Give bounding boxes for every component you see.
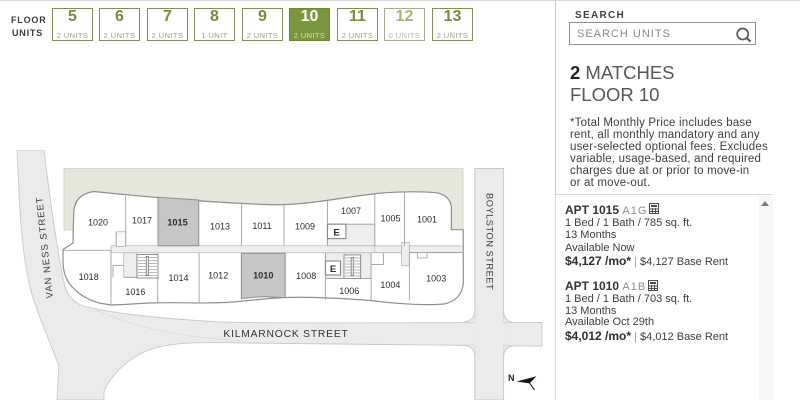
- svg-text:1017: 1017: [132, 215, 152, 225]
- svg-text:1010: 1010: [253, 270, 273, 280]
- svg-text:1001: 1001: [417, 214, 437, 224]
- svg-text:N: N: [508, 373, 515, 383]
- svg-text:1011: 1011: [252, 221, 271, 231]
- svg-text:E: E: [333, 227, 339, 238]
- svg-text:1007: 1007: [341, 206, 361, 216]
- svg-text:1014: 1014: [168, 273, 188, 283]
- svg-text:1009: 1009: [295, 221, 315, 231]
- svg-text:1015: 1015: [167, 217, 187, 227]
- svg-text:1005: 1005: [380, 213, 400, 223]
- svg-text:1006: 1006: [339, 286, 359, 296]
- svg-text:BOYLSTON STREET: BOYLSTON STREET: [485, 193, 495, 290]
- svg-text:1018: 1018: [79, 272, 99, 282]
- svg-text:1012: 1012: [208, 271, 228, 281]
- svg-text:1016: 1016: [125, 287, 145, 297]
- svg-text:KILMARNOCK STREET: KILMARNOCK STREET: [223, 329, 348, 340]
- svg-text:1020: 1020: [88, 217, 108, 227]
- svg-text:1008: 1008: [296, 271, 316, 281]
- svg-text:1013: 1013: [210, 221, 230, 231]
- svg-text:1004: 1004: [380, 280, 400, 290]
- svg-text:E: E: [330, 264, 336, 275]
- svg-text:1003: 1003: [426, 274, 446, 284]
